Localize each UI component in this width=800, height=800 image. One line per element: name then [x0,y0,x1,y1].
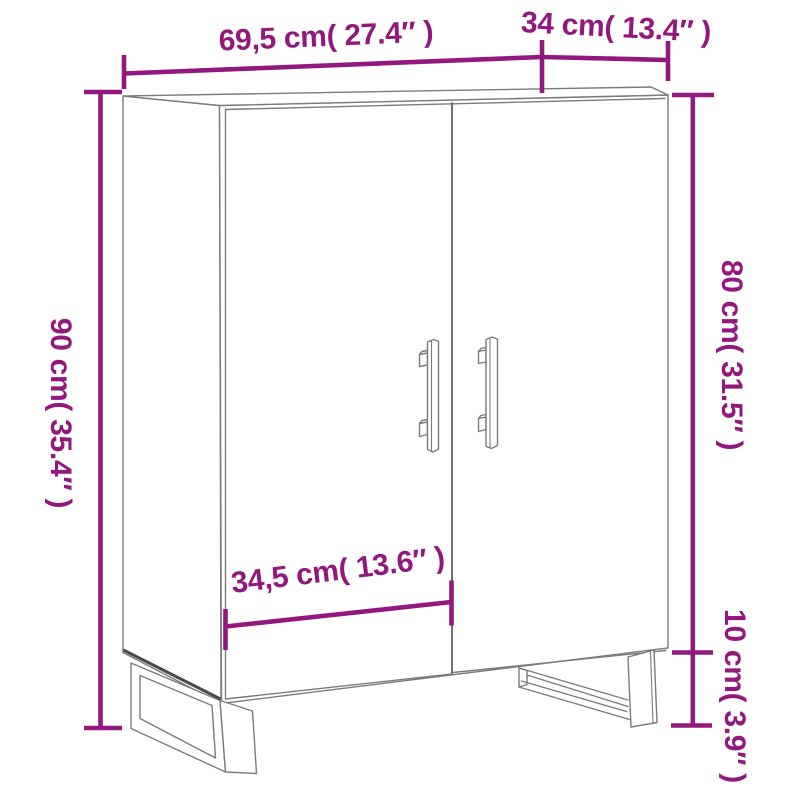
sideboard-line-art [0,0,800,800]
height-dimension-label: 90 cm( 35.4″ ) [45,318,75,508]
body-height-dimension-label: 80 cm( 31.5″ ) [716,260,746,450]
handle-bar [486,337,498,449]
cabinet-front-face [220,95,669,704]
leg-top-bar-upper [519,668,628,700]
dimension-line-body-leg-height [671,95,714,726]
leg-top-bar-lower [527,675,628,707]
depth-extent-line [542,57,668,60]
dimension-line-height [84,92,122,728]
leg-height-dimension-label: 10 cm( 3.9″ ) [719,609,749,783]
handle-bracket-top [420,353,428,367]
handle-bracket-bottom [420,422,428,437]
handle-bar [428,340,439,453]
handle-bracket-bottom [479,417,487,432]
dimension-diagram: 69,5 cm( 27.4″ ) 34 cm( 13.4″ ) 90 cm( 3… [0,0,800,800]
leg-post-side-face [220,701,257,774]
cabinet-side-panel [123,96,221,704]
leg-back-post [519,668,527,687]
leg-bottom-bar-lower [519,687,630,720]
handle-bracket-top [479,350,487,364]
leg-bottom-bar-upper [522,681,627,712]
width-extent-line [124,57,542,74]
